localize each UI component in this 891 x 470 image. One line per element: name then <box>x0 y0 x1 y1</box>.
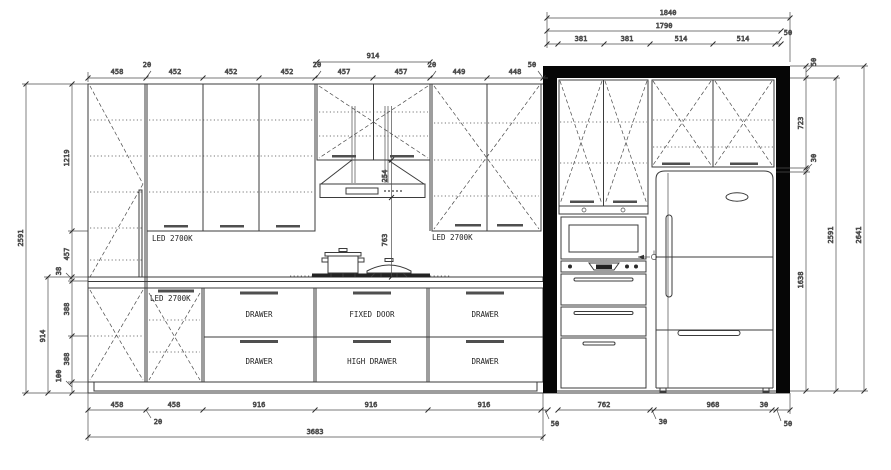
svg-text:458: 458 <box>168 401 181 409</box>
svg-text:20: 20 <box>154 418 162 426</box>
led-label-right: LED 2700K <box>432 233 473 242</box>
svg-text:1790: 1790 <box>656 22 673 30</box>
high-drawer-label: HIGH DRAWER <box>347 357 397 366</box>
svg-text:514: 514 <box>737 35 750 43</box>
svg-text:3683: 3683 <box>307 428 324 436</box>
led-label-left: LED 2700K <box>152 234 193 243</box>
svg-text:38: 38 <box>55 267 63 275</box>
dim-hood: 254 763 <box>381 106 394 280</box>
tall-cabinet <box>88 84 145 382</box>
svg-text:2591: 2591 <box>827 227 835 244</box>
svg-text:30: 30 <box>659 418 667 426</box>
svg-text:50: 50 <box>784 420 792 428</box>
countertop <box>88 274 543 282</box>
svg-text:763: 763 <box>381 234 389 247</box>
svg-text:381: 381 <box>621 35 634 43</box>
freezer-handle <box>678 331 740 336</box>
svg-text:723: 723 <box>797 117 805 130</box>
wall-right <box>776 66 790 393</box>
svg-text:50: 50 <box>784 29 792 37</box>
svg-text:381: 381 <box>575 35 588 43</box>
door-handle <box>497 224 523 227</box>
svg-text:514: 514 <box>675 35 688 43</box>
pot-icon <box>322 249 364 278</box>
svg-text:254: 254 <box>381 170 389 183</box>
svg-text:914: 914 <box>367 52 380 60</box>
svg-text:20: 20 <box>143 61 151 69</box>
oven-window <box>569 225 638 252</box>
door-handle <box>220 225 244 228</box>
hood-cabinet <box>315 84 430 231</box>
drawer-handle <box>240 292 278 295</box>
base-led-cabinet: LED 2700K <box>149 290 200 381</box>
svg-text:50: 50 <box>551 420 559 428</box>
door-handle <box>390 155 414 158</box>
fridge-top-handle <box>726 193 748 201</box>
drawer-label: DRAWER <box>471 357 499 366</box>
refrigerator <box>656 171 773 392</box>
door-handle <box>613 201 637 204</box>
svg-text:457: 457 <box>338 68 351 76</box>
svg-text:457: 457 <box>63 248 71 261</box>
svg-text:50: 50 <box>810 58 818 66</box>
fridge-door-handle <box>666 215 672 297</box>
svg-text:100: 100 <box>55 370 63 383</box>
svg-text:388: 388 <box>63 353 71 366</box>
wall-top <box>547 66 790 78</box>
svg-text:1638: 1638 <box>797 272 805 289</box>
drawer-handle <box>353 292 391 295</box>
bumper <box>621 208 625 212</box>
door-handle <box>276 225 300 228</box>
drawer-label: DRAWER <box>245 310 273 319</box>
svg-text:448: 448 <box>509 68 522 76</box>
svg-text:457: 457 <box>395 68 408 76</box>
cad-canvas: LED 2700K LED 2700K <box>0 0 891 470</box>
knob <box>568 265 572 269</box>
svg-text:50: 50 <box>528 61 536 69</box>
door-handle <box>455 224 481 227</box>
svg-text:20: 20 <box>428 61 436 69</box>
svg-text:2591: 2591 <box>17 230 25 247</box>
svg-text:458: 458 <box>111 68 124 76</box>
svg-text:1840: 1840 <box>660 9 677 17</box>
svg-text:914: 914 <box>39 330 47 343</box>
dim-top-main: 458 452 452 452 457 457 449 448 20 20 20… <box>86 52 549 82</box>
svg-text:388: 388 <box>63 303 71 316</box>
hood-buttons <box>384 190 402 192</box>
svg-text:452: 452 <box>225 68 238 76</box>
door-handle <box>164 225 188 228</box>
drawer-handle <box>466 340 504 343</box>
oven-upper-cabinet <box>559 80 648 214</box>
upper-cabinets-left <box>147 84 315 231</box>
fridge-upper-cabinet <box>652 80 774 167</box>
svg-text:916: 916 <box>365 401 378 409</box>
drawer-label: DRAWER <box>245 357 273 366</box>
power-outlet-symbol <box>638 251 657 260</box>
drawer-handle <box>240 340 278 343</box>
plinth <box>94 382 537 391</box>
base-cabinets: LED 2700K DRAWER FIXED DOOR DRAWER DRAWE… <box>88 288 543 391</box>
svg-text:452: 452 <box>169 68 182 76</box>
svg-text:2641: 2641 <box>855 227 863 244</box>
oven <box>561 217 646 259</box>
door-handle <box>570 201 594 204</box>
svg-text:968: 968 <box>707 401 720 409</box>
svg-text:458: 458 <box>111 401 124 409</box>
dim-top-right: 1840 1790 381 381 514 514 50 <box>545 9 793 62</box>
upper-cabinets-right <box>430 84 541 231</box>
door-handle <box>730 163 758 166</box>
kitchen-elevation-drawing: LED 2700K LED 2700K <box>0 0 891 470</box>
svg-text:30: 30 <box>760 401 768 409</box>
dim-bottom-right: 762 968 30 30 50 <box>556 393 793 428</box>
drawer-handle <box>583 342 615 345</box>
tall-cabinet-handle <box>139 190 142 277</box>
knob <box>625 265 629 269</box>
svg-text:762: 762 <box>598 401 611 409</box>
svg-text:452: 452 <box>281 68 294 76</box>
door-handle <box>332 155 356 158</box>
svg-text:916: 916 <box>253 401 266 409</box>
drawer-handle <box>574 312 633 315</box>
oven-control-panel <box>561 261 646 272</box>
drawer-label: DRAWER <box>471 310 499 319</box>
hood-control-panel <box>346 188 378 194</box>
drawer-handle <box>574 278 633 281</box>
bumper <box>582 208 586 212</box>
knob <box>634 265 638 269</box>
range-hood <box>320 106 425 198</box>
fixed-door-label: FIXED DOOR <box>349 310 395 319</box>
svg-text:1219: 1219 <box>63 150 71 167</box>
svg-text:916: 916 <box>478 401 491 409</box>
led-label-base: LED 2700K <box>150 294 191 303</box>
svg-text:449: 449 <box>453 68 466 76</box>
svg-text:30: 30 <box>810 154 818 162</box>
dim-bottom-main: 458 458 916 916 916 20 50 3683 <box>86 393 560 441</box>
oven-tower <box>561 217 646 388</box>
dim-left: 2591 914 1219 457 38 388 388 100 <box>17 82 88 396</box>
svg-text:20: 20 <box>313 61 321 69</box>
door-handle <box>662 163 690 166</box>
wall-left <box>543 66 557 393</box>
drawer-handle <box>466 292 504 295</box>
drawer-handle <box>353 340 391 343</box>
